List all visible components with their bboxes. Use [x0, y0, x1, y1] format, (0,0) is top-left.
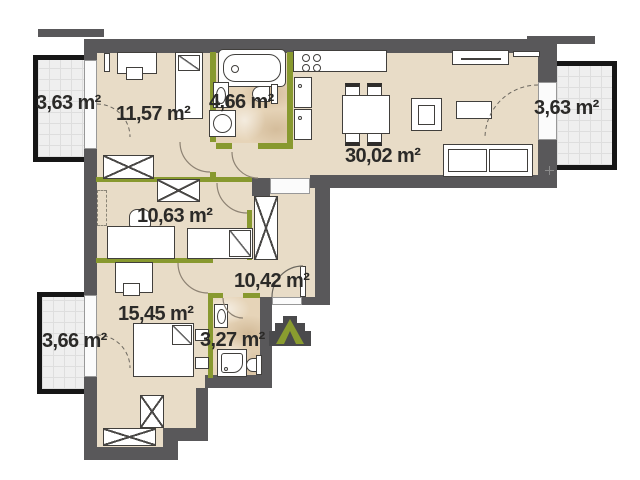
- partition: [216, 143, 232, 149]
- handle: [298, 84, 302, 88]
- handle: [298, 116, 302, 120]
- bathtub-drain: [231, 65, 239, 73]
- armchair-seat: [418, 105, 435, 125]
- washbasin-icon: [214, 304, 228, 328]
- dining-table-icon: [342, 95, 390, 134]
- pillow: [229, 230, 251, 257]
- passage-opening: [270, 178, 310, 194]
- wall: [84, 447, 178, 460]
- tv-bench-icon: [456, 101, 492, 119]
- chair-icon: [123, 283, 140, 296]
- area-label-balcony-right: 3,63 m²: [534, 97, 599, 120]
- chair-icon: [126, 67, 143, 80]
- shelf-icon: [513, 51, 540, 57]
- area-label-living-room: 30,02 m²: [345, 145, 420, 168]
- wall: [38, 29, 104, 37]
- sofa-cushion: [489, 149, 528, 172]
- wall: [302, 297, 330, 305]
- area-label-room-middle: 10,63 m²: [137, 205, 212, 228]
- double-bed-icon: [133, 323, 194, 377]
- sideboard-icon: [452, 50, 509, 65]
- wall: [252, 178, 270, 196]
- area-label-room-top-left: 11,57 m²: [116, 103, 190, 126]
- wardrobe-icon: [103, 155, 154, 179]
- area-label-balcony-top-left: 3,63 m²: [36, 92, 101, 115]
- toilet-icon: [246, 355, 262, 375]
- area-label-hallway: 10,42 m²: [234, 270, 309, 293]
- developer-logo-icon: [266, 312, 314, 350]
- area-label-bathroom-bottom: 3,27 m²: [200, 329, 265, 352]
- area-label-bathroom-top: 4,66 m²: [209, 91, 274, 114]
- stove-burners-icon: [302, 64, 310, 72]
- wall: [84, 148, 97, 296]
- sofa-icon: [443, 144, 533, 177]
- area-label-balcony-bottom-left: 3,66 m²: [42, 330, 107, 353]
- partition: [258, 143, 290, 149]
- partition: [243, 293, 260, 298]
- radiator-icon: [104, 53, 110, 72]
- drum: [213, 114, 232, 133]
- wardrobe-icon: [254, 196, 278, 260]
- basin: [217, 309, 226, 324]
- single-bed-icon: [187, 228, 253, 259]
- wall: [196, 388, 208, 431]
- plus-marker: [545, 166, 554, 175]
- pillow: [178, 55, 200, 71]
- wall: [315, 188, 330, 298]
- developer-logo: [266, 312, 314, 350]
- desk-icon: [107, 226, 175, 259]
- armchair-icon: [411, 98, 442, 131]
- partition: [213, 293, 223, 298]
- dining-chair-icon: [367, 132, 382, 146]
- entrance-threshold: [272, 297, 302, 305]
- wall: [538, 39, 557, 84]
- kitchen-cabinet-icon: [294, 109, 312, 140]
- sideboard-line: [461, 58, 501, 60]
- wall: [163, 428, 208, 441]
- shower-drain: [224, 367, 228, 371]
- shower-icon: [217, 349, 247, 377]
- stove-burners-icon: [313, 64, 321, 72]
- bowl: [246, 358, 257, 372]
- wardrobe-icon: [157, 179, 200, 202]
- washing-machine-icon: [209, 110, 236, 137]
- nightstand-icon: [195, 357, 209, 369]
- wardrobe-icon: [140, 395, 164, 428]
- stove-burners-icon: [313, 54, 321, 62]
- kitchen-cabinet-icon: [294, 77, 312, 108]
- pillow: [172, 325, 192, 345]
- wall: [84, 39, 97, 62]
- dining-chair-icon: [345, 132, 360, 146]
- radiator-icon: [97, 190, 107, 226]
- wardrobe-icon: [103, 428, 156, 446]
- stove-burners-icon: [302, 54, 310, 62]
- floor-plan: 3,63 m² 11,57 m² 4,66 m² 30,02 m² 3,63 m…: [0, 0, 640, 480]
- area-label-bedroom: 15,45 m²: [118, 303, 193, 326]
- sofa-cushion: [448, 149, 487, 172]
